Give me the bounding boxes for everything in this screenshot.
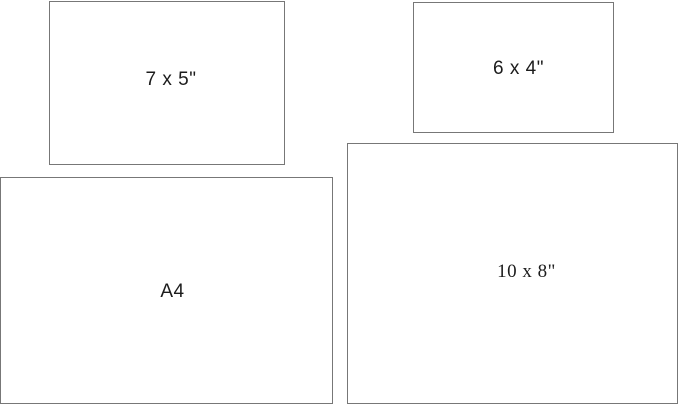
print-size-comparison-diagram: 7 x 5" 6 x 4" A4 10 x 8" bbox=[0, 0, 679, 406]
paper-label-a4: A4 bbox=[160, 282, 184, 301]
paper-rect-7x5: 7 x 5" bbox=[49, 1, 285, 165]
paper-rect-6x4: 6 x 4" bbox=[413, 2, 614, 133]
paper-label-7x5: 7 x 5" bbox=[146, 70, 197, 89]
paper-rect-10x8: 10 x 8" bbox=[347, 143, 678, 404]
paper-label-6x4: 6 x 4" bbox=[493, 59, 544, 78]
paper-rect-a4: A4 bbox=[0, 177, 333, 404]
paper-label-10x8: 10 x 8" bbox=[497, 262, 556, 281]
